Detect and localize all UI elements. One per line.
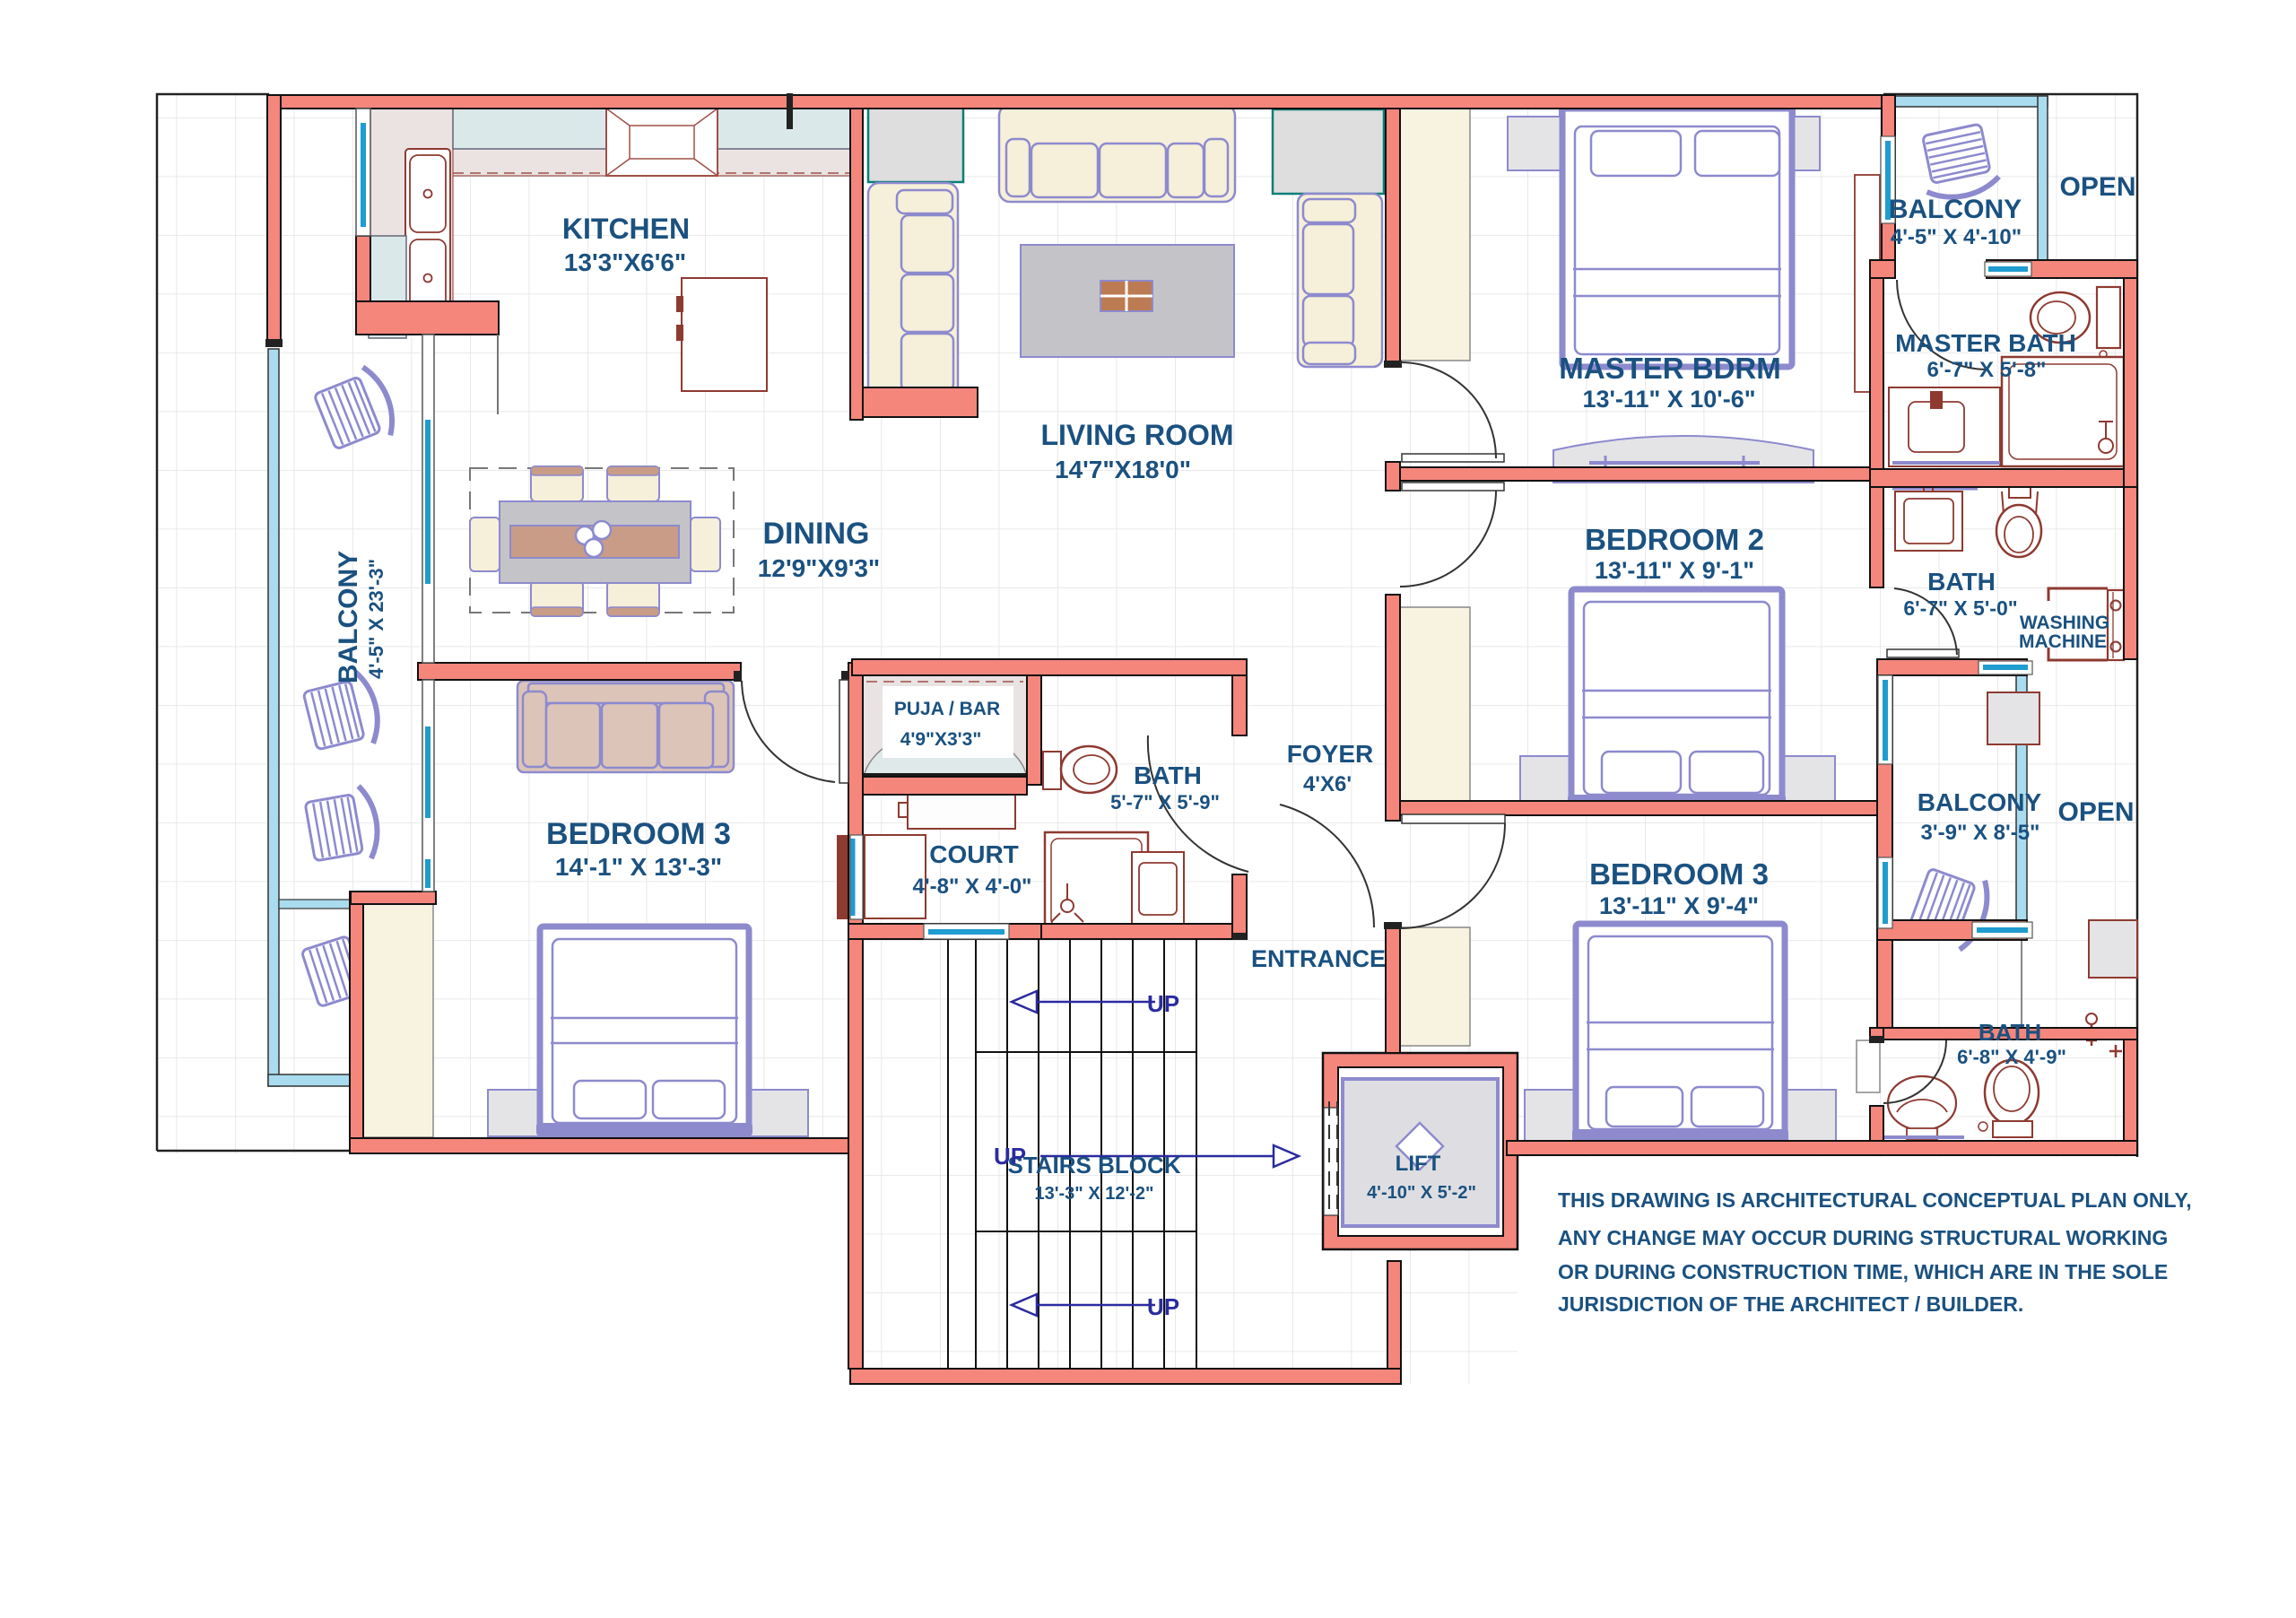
svg-text:14'-1" X 13'-3": 14'-1" X 13'-3" — [555, 853, 722, 881]
svg-text:STAIRS BLOCK: STAIRS BLOCK — [1007, 1152, 1180, 1179]
svg-text:LIVING ROOM: LIVING ROOM — [1040, 419, 1233, 451]
svg-text:13'3"X6'6": 13'3"X6'6" — [564, 248, 686, 276]
svg-text:MASTER BATH: MASTER BATH — [1895, 329, 2076, 357]
svg-text:UP: UP — [1147, 990, 1179, 1017]
svg-text:THIS DRAWING IS ARCHITECTURAL: THIS DRAWING IS ARCHITECTURAL CONCEPTUAL… — [1558, 1188, 2192, 1212]
svg-text:4'-10" X 5'-2": 4'-10" X 5'-2" — [1367, 1183, 1476, 1203]
svg-text:4'9"X3'3": 4'9"X3'3" — [900, 729, 982, 750]
svg-text:KITCHEN: KITCHEN — [562, 213, 690, 245]
svg-text:MACHINE: MACHINE — [2019, 631, 2107, 652]
svg-text:BATH: BATH — [1979, 1019, 2041, 1046]
svg-text:13'-11" X 10'-6": 13'-11" X 10'-6" — [1582, 386, 1755, 413]
svg-text:14'7"X18'0": 14'7"X18'0" — [1055, 456, 1191, 483]
svg-text:4'-5" X 4'-10": 4'-5" X 4'-10" — [1891, 225, 2022, 249]
svg-text:DINING: DINING — [763, 517, 870, 551]
svg-text:OPEN: OPEN — [2057, 797, 2134, 827]
svg-text:13'-11" X 9'-4": 13'-11" X 9'-4" — [1599, 892, 1759, 919]
svg-text:BEDROOM 3: BEDROOM 3 — [546, 817, 731, 851]
svg-text:ENTRANCE: ENTRANCE — [1251, 945, 1386, 972]
svg-text:6'-7" X 5'-0": 6'-7" X 5'-0" — [1903, 596, 2017, 620]
svg-text:PUJA / BAR: PUJA / BAR — [894, 699, 1000, 719]
svg-text:13'-11" X 9'-1": 13'-11" X 9'-1" — [1595, 557, 1754, 584]
svg-text:BALCONY: BALCONY — [334, 551, 363, 683]
svg-text:UP: UP — [994, 1143, 1026, 1170]
svg-text:UP: UP — [1147, 1293, 1179, 1320]
svg-text:BALCONY: BALCONY — [1889, 195, 2022, 224]
svg-text:BEDROOM 2: BEDROOM 2 — [1585, 523, 1764, 556]
svg-text:4'-8" X 4'-0": 4'-8" X 4'-0" — [913, 874, 1032, 899]
svg-text:OPEN: OPEN — [2059, 172, 2135, 202]
svg-text:13'-3" X 12'-2": 13'-3" X 12'-2" — [1035, 1184, 1154, 1204]
svg-text:BATH: BATH — [1134, 761, 1202, 789]
svg-text:BATH: BATH — [1927, 568, 1996, 596]
svg-text:MASTER BDRM: MASTER BDRM — [1559, 352, 1780, 385]
svg-text:5'-7" X 5'-9": 5'-7" X 5'-9" — [1110, 791, 1220, 813]
svg-text:6'-7" X 5'-8": 6'-7" X 5'-8" — [1927, 358, 2047, 382]
svg-text:COURT: COURT — [929, 840, 1019, 868]
svg-text:JURISDICTION OF THE ARCHITECT: JURISDICTION OF THE ARCHITECT / BUILDER. — [1558, 1292, 2023, 1316]
svg-text:12'9"X9'3": 12'9"X9'3" — [758, 554, 880, 582]
svg-text:BEDROOM 3: BEDROOM 3 — [1589, 857, 1769, 891]
svg-text:4'X6': 4'X6' — [1303, 772, 1352, 796]
svg-text:3'-9" X 8'-5": 3'-9" X 8'-5" — [1921, 821, 2040, 845]
svg-text:OR DURING CONSTRUCTION TIME, W: OR DURING CONSTRUCTION TIME, WHICH ARE I… — [1558, 1260, 2168, 1283]
svg-text:LIFT: LIFT — [1396, 1152, 1441, 1176]
svg-text:BALCONY: BALCONY — [1918, 788, 2042, 816]
svg-text:ANY CHANGE MAY OCCUR DURING ST: ANY CHANGE MAY OCCUR DURING STRUCTURAL W… — [1558, 1226, 2168, 1249]
svg-text:FOYER: FOYER — [1287, 740, 1373, 768]
svg-text:6'-8" X 4'-9": 6'-8" X 4'-9" — [1957, 1046, 2066, 1068]
svg-text:WASHING: WASHING — [2020, 613, 2109, 633]
svg-text:4'-5" X 23'-3": 4'-5" X 23'-3" — [365, 559, 387, 679]
